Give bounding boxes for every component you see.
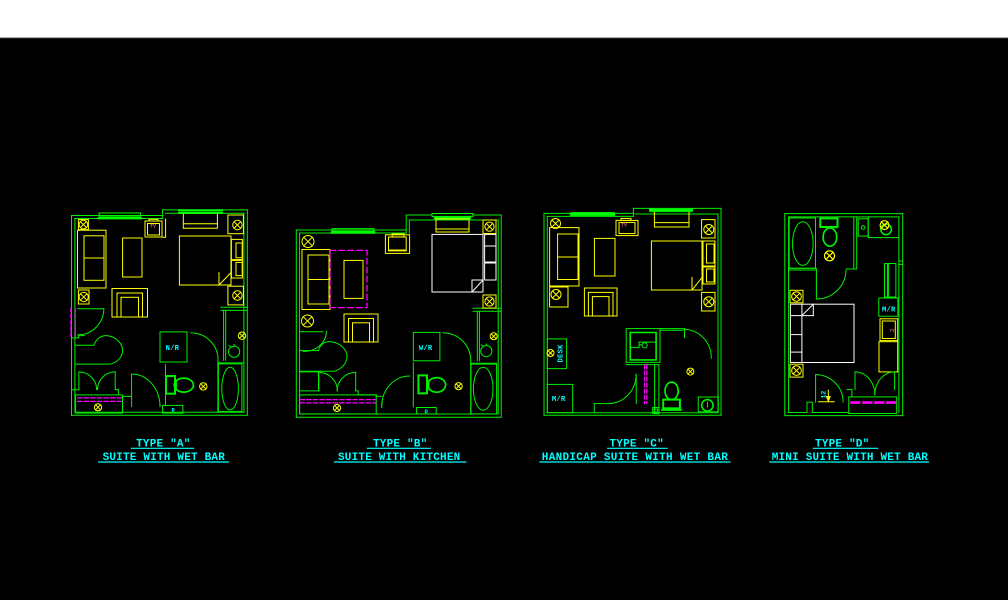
svg-text:M/R: M/R — [552, 396, 566, 404]
svg-text:TV: TV — [890, 330, 896, 334]
svg-text:TV: TV — [621, 223, 627, 229]
svg-text:DESK: DESK — [558, 344, 566, 363]
svg-text:N/R: N/R — [166, 345, 180, 353]
svg-text:TV: TV — [150, 224, 156, 230]
svg-text:M/R: M/R — [882, 307, 896, 315]
svg-text:12: 12 — [821, 391, 828, 399]
svg-text:W/R: W/R — [419, 345, 433, 353]
